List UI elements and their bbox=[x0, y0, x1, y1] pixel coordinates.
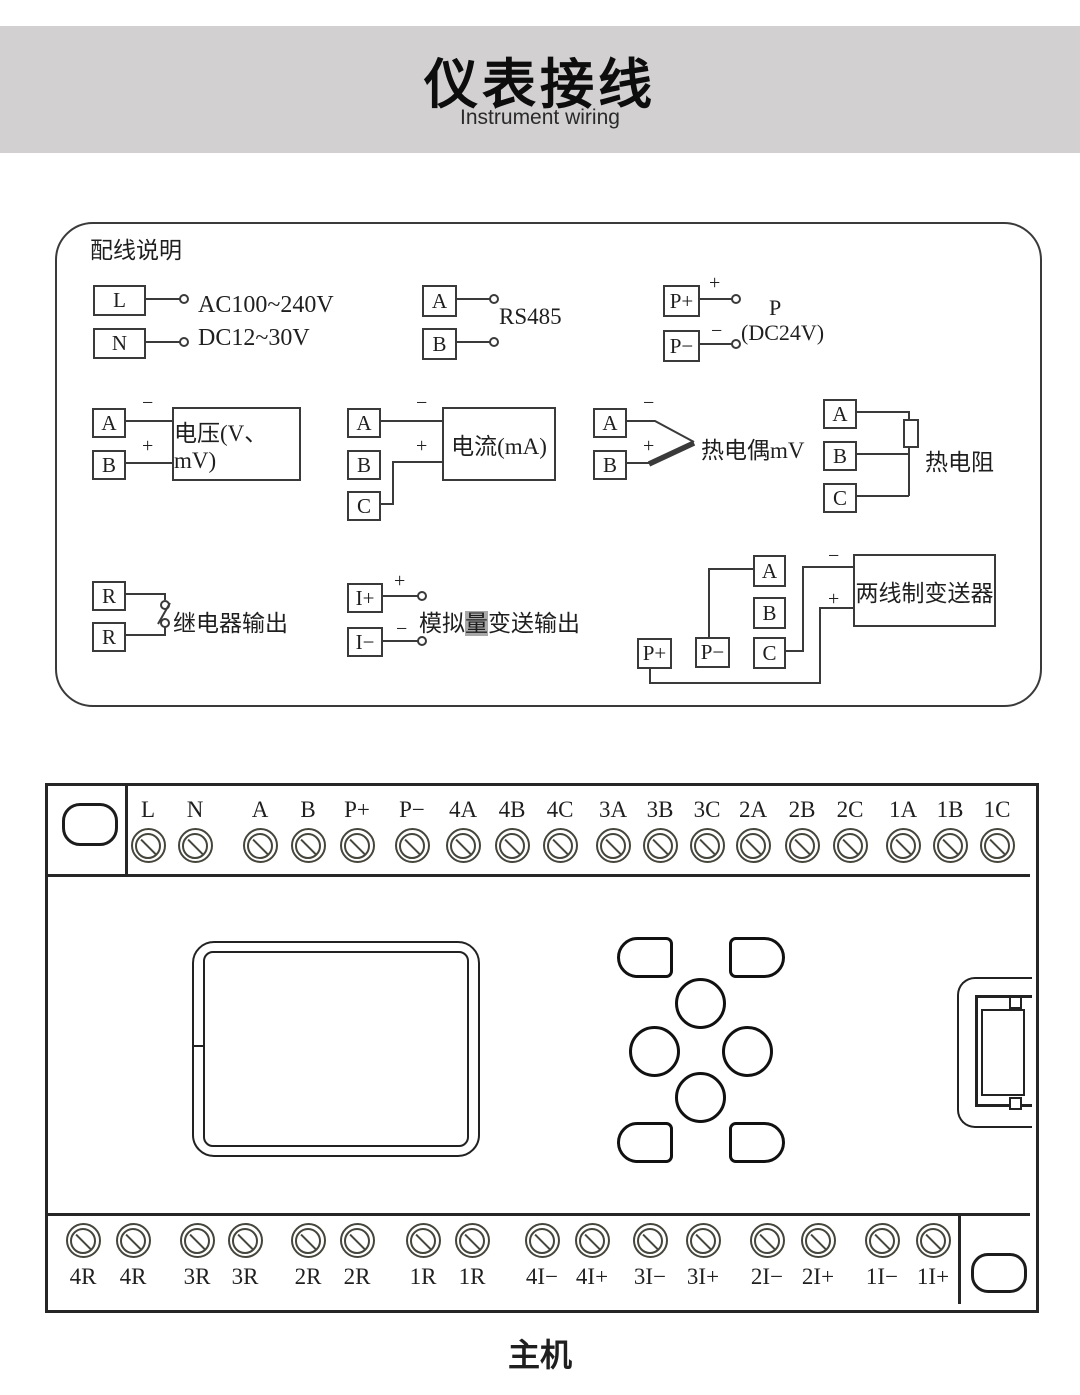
minus-sign: − bbox=[416, 392, 427, 415]
terminal-box-L: L bbox=[93, 285, 146, 316]
terminal-box-B: B bbox=[347, 450, 381, 480]
rtd-wires bbox=[853, 412, 909, 496]
terminal-box-R1: R bbox=[92, 581, 126, 611]
terminal-top-2C: 2C bbox=[825, 794, 875, 863]
terminal-label: P− bbox=[387, 794, 437, 826]
terminal-box-A: A bbox=[92, 408, 126, 438]
terminal-box-label: A bbox=[356, 411, 371, 436]
terminal-label: 4R bbox=[108, 1262, 158, 1292]
terminal-box-C: C bbox=[347, 491, 381, 521]
thermocouple-label: 热电偶mV bbox=[701, 431, 805, 465]
terminal-box-C: C bbox=[753, 637, 786, 669]
screw-terminal-icon bbox=[686, 1223, 721, 1258]
terminal-top-1B: 1B bbox=[925, 794, 975, 863]
rs485-wires bbox=[453, 295, 498, 346]
terminal-bottom-2I−: 2I− bbox=[742, 1221, 792, 1292]
plus-sign: + bbox=[643, 435, 654, 458]
terminal-label: P+ bbox=[332, 794, 382, 826]
terminal-box-label: P+ bbox=[670, 289, 694, 314]
analog-label-post: 变送输出 bbox=[488, 611, 580, 636]
terminal-box-label: C bbox=[762, 641, 776, 666]
power-wires bbox=[139, 295, 188, 346]
terminal-top-B: B bbox=[283, 794, 333, 863]
terminal-label: 2C bbox=[825, 794, 875, 826]
current-label: 电流(mA) bbox=[451, 427, 547, 461]
rs485-label: RS485 bbox=[499, 304, 562, 330]
terminal-label: 2A bbox=[728, 794, 778, 826]
terminal-label: 3R bbox=[220, 1262, 270, 1292]
plus-sign: + bbox=[416, 435, 427, 458]
terminal-box-label: A bbox=[602, 411, 617, 436]
terminal-label: 2I+ bbox=[793, 1262, 843, 1292]
minus-sign: − bbox=[396, 618, 407, 641]
terminal-box-label: A bbox=[432, 289, 447, 314]
terminal-top-1A: 1A bbox=[878, 794, 928, 863]
terminal-top-L: L bbox=[123, 794, 173, 863]
terminal-label: 4A bbox=[438, 794, 488, 826]
terminal-label: L bbox=[123, 794, 173, 826]
screw-terminal-icon bbox=[916, 1223, 951, 1258]
terminal-box-label: P+ bbox=[643, 641, 667, 666]
terminal-top-2B: 2B bbox=[777, 794, 827, 863]
terminal-box-B: B bbox=[823, 441, 857, 471]
transmitter-box: 两线制变送器 bbox=[853, 554, 996, 627]
terminal-top-3B: 3B bbox=[635, 794, 685, 863]
relay-output-label: 继电器输出 bbox=[173, 604, 288, 638]
terminal-box-label: R bbox=[102, 625, 116, 650]
terminal-box-P-minus: P− bbox=[663, 330, 700, 362]
screw-terminal-icon bbox=[785, 828, 820, 863]
terminal-box-A: A bbox=[753, 555, 786, 587]
analog-label-highlighted: 量 bbox=[465, 611, 488, 636]
terminal-top-P−: P− bbox=[387, 794, 437, 863]
plus-sign: + bbox=[709, 272, 720, 295]
screw-terminal-icon bbox=[736, 828, 771, 863]
terminal-label: N bbox=[170, 794, 220, 826]
screw-terminal-icon bbox=[575, 1223, 610, 1258]
terminal-top-3C: 3C bbox=[682, 794, 732, 863]
terminal-label: 2B bbox=[777, 794, 827, 826]
screw-terminal-icon bbox=[750, 1223, 785, 1258]
terminal-box-P-plus: P+ bbox=[663, 285, 700, 317]
plus-sign: + bbox=[394, 570, 405, 593]
screw-terminal-icon bbox=[406, 1223, 441, 1258]
screw-terminal-icon bbox=[865, 1223, 900, 1258]
screw-terminal-icon bbox=[633, 1223, 668, 1258]
terminal-bottom-4I+: 4I+ bbox=[567, 1221, 617, 1292]
terminal-label: B bbox=[283, 794, 333, 826]
screw-terminal-icon bbox=[643, 828, 678, 863]
terminal-box-A: A bbox=[347, 408, 381, 438]
terminal-bottom-3R: 3R bbox=[220, 1221, 270, 1292]
terminal-box-P-plus: P+ bbox=[637, 638, 672, 669]
terminal-top-4A: 4A bbox=[438, 794, 488, 863]
terminal-box-I-minus: I− bbox=[347, 627, 383, 657]
terminal-box-label: P− bbox=[670, 334, 694, 359]
relay-wires bbox=[122, 594, 170, 635]
terminal-top-N: N bbox=[170, 794, 220, 863]
terminal-box-I-plus: I+ bbox=[347, 583, 383, 613]
terminal-label: 1A bbox=[878, 794, 928, 826]
screw-terminal-icon bbox=[596, 828, 631, 863]
terminal-label: 1C bbox=[972, 794, 1022, 826]
terminal-label: 2R bbox=[332, 1262, 382, 1292]
terminal-top-P+: P+ bbox=[332, 794, 382, 863]
minus-sign: − bbox=[711, 320, 722, 343]
terminal-box-P-minus: P− bbox=[695, 637, 730, 668]
voltage-input-box: 电压(V、mV) bbox=[172, 407, 301, 481]
terminal-box-A: A bbox=[593, 408, 627, 438]
screw-terminal-icon bbox=[131, 828, 166, 863]
terminal-label: 4I+ bbox=[567, 1262, 617, 1292]
terminal-box-R2: R bbox=[92, 622, 126, 652]
terminal-bottom-2I+: 2I+ bbox=[793, 1221, 843, 1292]
aux-power-spec: (DC24V) bbox=[741, 320, 824, 346]
page: 仪表接线 Instrument wiring 配线说明 bbox=[0, 0, 1080, 1395]
terminal-label: 1B bbox=[925, 794, 975, 826]
screw-terminal-icon bbox=[495, 828, 530, 863]
screw-terminal-icon bbox=[690, 828, 725, 863]
screw-terminal-icon bbox=[228, 1223, 263, 1258]
screw-terminal-icon bbox=[395, 828, 430, 863]
terminal-label: 4B bbox=[487, 794, 537, 826]
minus-sign: − bbox=[142, 392, 153, 415]
terminal-bottom-4R: 4R bbox=[108, 1221, 158, 1292]
terminal-bottom-1R: 1R bbox=[398, 1221, 448, 1292]
screw-terminal-icon bbox=[455, 1223, 490, 1258]
screw-terminal-icon bbox=[66, 1223, 101, 1258]
voltage-label: 电压(V、mV) bbox=[174, 414, 299, 474]
screw-terminal-icon bbox=[340, 828, 375, 863]
terminal-box-B: B bbox=[422, 328, 457, 360]
screw-terminal-icon bbox=[525, 1223, 560, 1258]
terminal-box-C: C bbox=[823, 483, 857, 513]
terminal-box-B: B bbox=[593, 450, 627, 480]
terminal-bottom-2R: 2R bbox=[332, 1221, 382, 1292]
current-input-box: 电流(mA) bbox=[442, 407, 556, 481]
terminal-box-label: B bbox=[357, 453, 371, 478]
terminal-top-A: A bbox=[235, 794, 285, 863]
screw-terminal-icon bbox=[886, 828, 921, 863]
terminal-bottom-3I+: 3I+ bbox=[678, 1221, 728, 1292]
terminal-bottom-1I−: 1I− bbox=[857, 1221, 907, 1292]
screw-terminal-icon bbox=[116, 1223, 151, 1258]
terminal-box-label: L bbox=[113, 288, 126, 313]
thermocouple-wires bbox=[623, 421, 694, 464]
terminal-top-1C: 1C bbox=[972, 794, 1022, 863]
minus-sign: − bbox=[643, 392, 654, 415]
rtd-label: 热电阻 bbox=[925, 443, 994, 477]
terminal-box-label: B bbox=[833, 444, 847, 469]
terminal-label: A bbox=[235, 794, 285, 826]
analog-output-label: 模拟量变送输出 bbox=[419, 604, 580, 638]
terminal-box-A: A bbox=[823, 399, 857, 429]
screw-terminal-icon bbox=[178, 828, 213, 863]
terminal-box-label: N bbox=[112, 331, 127, 356]
terminal-bottom-2R: 2R bbox=[283, 1221, 333, 1292]
terminal-label: 4R bbox=[58, 1262, 108, 1292]
screw-terminal-icon bbox=[446, 828, 481, 863]
terminal-box-label: C bbox=[833, 486, 847, 511]
terminal-bottom-4R: 4R bbox=[58, 1221, 108, 1292]
terminal-box-label: I− bbox=[356, 630, 375, 655]
terminal-box-B: B bbox=[92, 450, 126, 480]
terminal-label: 4C bbox=[535, 794, 585, 826]
terminal-bottom-4I−: 4I− bbox=[517, 1221, 567, 1292]
terminal-top-4B: 4B bbox=[487, 794, 537, 863]
terminal-box-label: P− bbox=[701, 640, 725, 665]
terminal-label: 1I+ bbox=[908, 1262, 958, 1292]
screw-terminal-icon bbox=[543, 828, 578, 863]
terminal-label: 3A bbox=[588, 794, 638, 826]
minus-sign: − bbox=[828, 545, 839, 568]
transmitter-wires bbox=[650, 567, 853, 683]
terminal-label: 2I− bbox=[742, 1262, 792, 1292]
terminal-label: 3I+ bbox=[678, 1262, 728, 1292]
screw-terminal-icon bbox=[980, 828, 1015, 863]
terminal-box-label: B bbox=[432, 332, 446, 357]
terminal-bottom-1I+: 1I+ bbox=[908, 1221, 958, 1292]
terminal-box-label: B bbox=[603, 453, 617, 478]
analog-label-pre: 模拟 bbox=[419, 611, 465, 636]
terminal-label: 1R bbox=[398, 1262, 448, 1292]
plus-sign: + bbox=[142, 435, 153, 458]
terminal-box-label: A bbox=[762, 559, 777, 584]
terminal-label: 1I− bbox=[857, 1262, 907, 1292]
terminal-bottom-1R: 1R bbox=[447, 1221, 497, 1292]
terminal-label: 2R bbox=[283, 1262, 333, 1292]
terminal-box-label: I+ bbox=[356, 586, 375, 611]
power-spec-line2: DC12~30V bbox=[198, 325, 310, 352]
terminal-label: 3B bbox=[635, 794, 685, 826]
transmitter-label: 两线制变送器 bbox=[856, 574, 994, 608]
screw-terminal-icon bbox=[243, 828, 278, 863]
screw-terminal-icon bbox=[180, 1223, 215, 1258]
terminal-box-N: N bbox=[93, 328, 146, 359]
terminal-top-4C: 4C bbox=[535, 794, 585, 863]
terminal-box-B: B bbox=[753, 597, 786, 629]
terminal-bottom-3R: 3R bbox=[172, 1221, 222, 1292]
terminal-label: 3C bbox=[682, 794, 732, 826]
screw-terminal-icon bbox=[291, 828, 326, 863]
current-wires bbox=[377, 421, 442, 504]
aux-power-name: P bbox=[769, 295, 781, 321]
terminal-top-2A: 2A bbox=[728, 794, 778, 863]
resistor-icon bbox=[903, 419, 919, 448]
terminal-top-3A: 3A bbox=[588, 794, 638, 863]
terminal-label: 3R bbox=[172, 1262, 222, 1292]
screw-terminal-icon bbox=[801, 1223, 836, 1258]
wiring-lines bbox=[0, 0, 1080, 1395]
terminal-label: 1R bbox=[447, 1262, 497, 1292]
plus-sign: + bbox=[828, 588, 839, 611]
terminal-label: 4I− bbox=[517, 1262, 567, 1292]
terminal-box-label: B bbox=[102, 453, 116, 478]
screw-terminal-icon bbox=[933, 828, 968, 863]
terminal-box-label: R bbox=[102, 584, 116, 609]
terminal-bottom-3I−: 3I− bbox=[625, 1221, 675, 1292]
terminal-box-label: C bbox=[357, 494, 371, 519]
screw-terminal-icon bbox=[833, 828, 868, 863]
screw-terminal-icon bbox=[340, 1223, 375, 1258]
terminal-box-label: A bbox=[101, 411, 116, 436]
terminal-box-label: A bbox=[832, 402, 847, 427]
terminal-box-A: A bbox=[422, 285, 457, 317]
terminal-box-label: B bbox=[762, 601, 776, 626]
terminal-label: 3I− bbox=[625, 1262, 675, 1292]
power-spec-line1: AC100~240V bbox=[198, 292, 334, 319]
screw-terminal-icon bbox=[291, 1223, 326, 1258]
